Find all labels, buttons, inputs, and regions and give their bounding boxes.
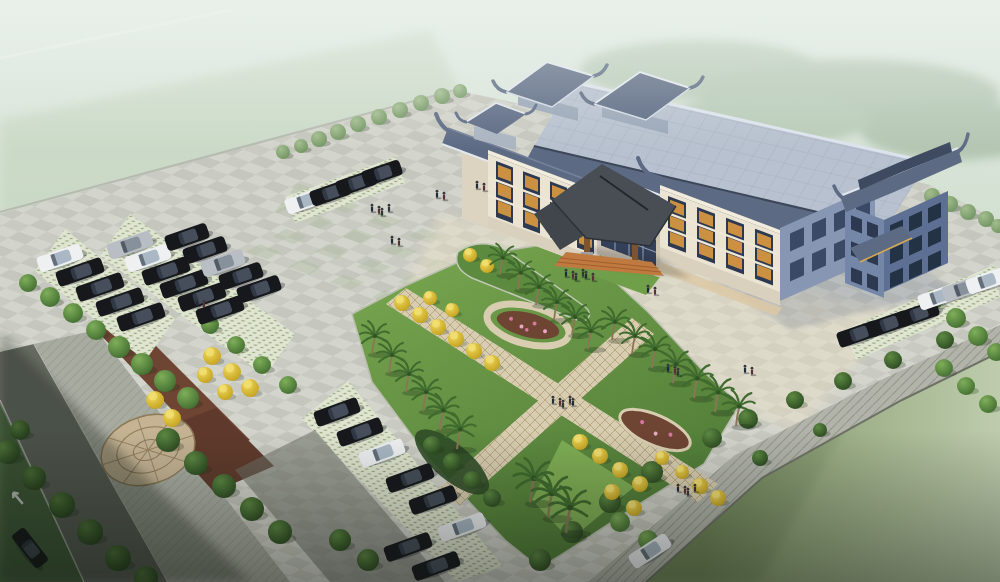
rendering-canvas	[0, 0, 1000, 582]
top-mist-overlay	[0, 0, 1000, 150]
architectural-rendering	[0, 0, 1000, 582]
